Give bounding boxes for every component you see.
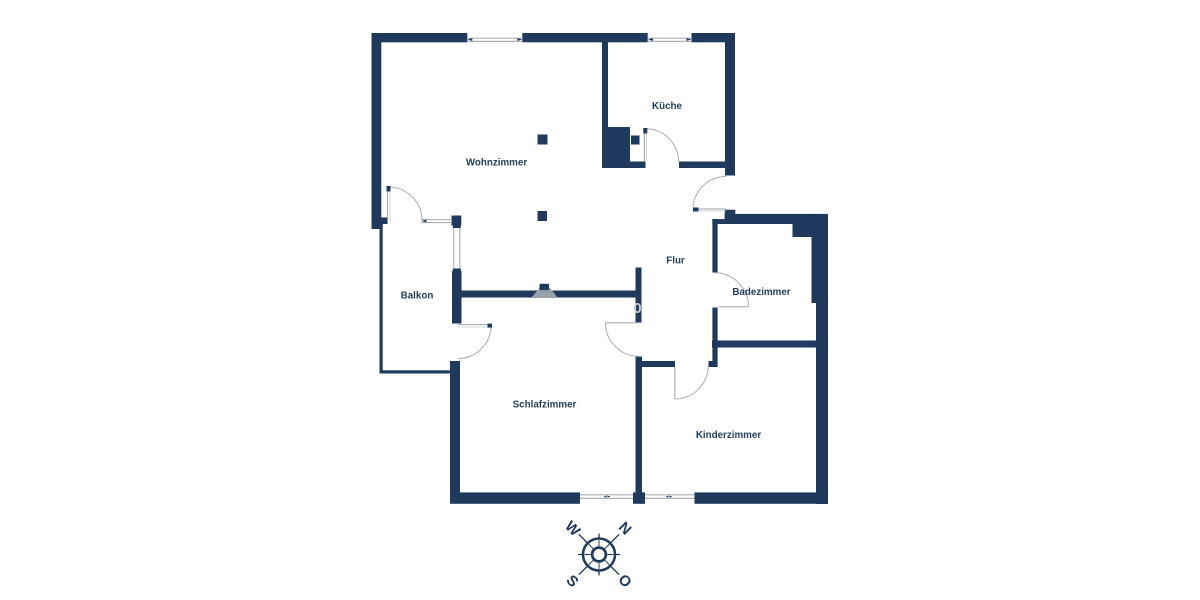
svg-text:Badezimmer: Badezimmer [732,287,790,298]
svg-text:Balkon: Balkon [401,291,434,302]
svg-text:0: 0 [633,301,641,317]
svg-text:Wohnzimmer: Wohnzimmer [466,158,528,169]
svg-text:Flur: Flur [666,256,685,267]
svg-text:Schlafzimmer: Schlafzimmer [513,400,577,411]
svg-text:Küche: Küche [652,101,682,112]
svg-text:Kinderzimmer: Kinderzimmer [696,430,762,441]
